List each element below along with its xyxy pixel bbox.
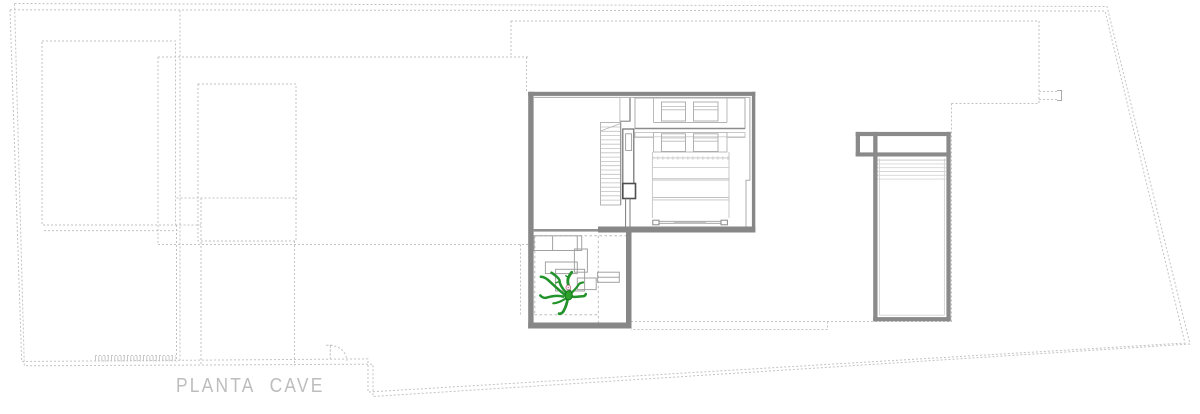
svg-text:PLANTA CAVE: PLANTA CAVE — [176, 375, 325, 397]
